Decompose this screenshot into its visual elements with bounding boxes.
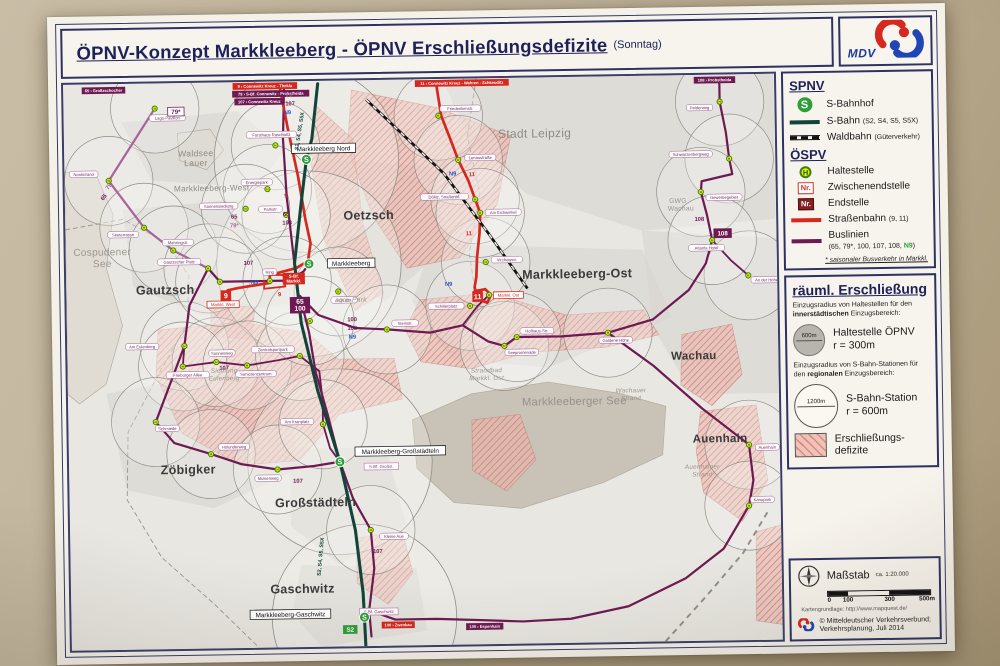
coverage-note-1: Einzugsradius von Haltestellen für den i… [793, 299, 929, 319]
legend-item-sbahnhof: S S-Bahnhof [789, 95, 925, 112]
legend-label: S-Bahn (S2, S4, S5, S5X) [827, 114, 919, 127]
map-sheet: ÖPNV-Konzept Markkleeberg - ÖPNV Erschli… [47, 3, 955, 665]
scale-label: Maßstab [827, 569, 870, 582]
area-label: Auenhainer [684, 463, 720, 471]
tram-line-icon [791, 218, 821, 222]
page-title: ÖPNV-Konzept Markkleeberg - ÖPNV Erschli… [76, 34, 607, 64]
coverage-label: S-Bahn-Stationr = 600m [846, 392, 918, 418]
legend-item-endstelle: Nr. Endstelle [791, 196, 927, 210]
route-box-label: 108 › Probstheida [698, 77, 732, 83]
stop-label: Mehringstr. [168, 240, 188, 245]
route-box-label: 65 › Großzschocher [85, 88, 123, 94]
nr-open-icon: Nr. [798, 182, 814, 194]
area-label: Cospudener [73, 247, 131, 259]
radius-600m-icon: 1200m [794, 384, 839, 429]
stop-label: Seepromenade [508, 350, 537, 355]
stop-label: Sonnensiedlung [204, 203, 234, 208]
sbahn-logo-icon: S [797, 97, 812, 112]
area-label: Gautzsch [136, 283, 195, 298]
line-number-label: 107 [285, 101, 295, 107]
content-row: HHHHHHHHHHHHHHHHHHHHHHHHHHHHHHHHHHHHHHHH… [61, 69, 942, 653]
map-panel: HHHHHHHHHHHHHHHHHHHHHHHHHHHHHHHHHHHHHHHH… [61, 72, 785, 653]
stop-label: Gautzscher Platz [164, 259, 195, 265]
station-label: Markkleeberg-Großstädteln [362, 448, 440, 456]
line-number-label: N9 [251, 280, 258, 286]
legend-label: Haltestelle [827, 165, 874, 177]
mdv-mini-logo-icon [797, 618, 814, 631]
area-label: Auenhain [693, 433, 748, 446]
stop-label: Friederikenstr. [447, 106, 473, 111]
stop-label: Dölitz, Straßenbf. [428, 194, 460, 200]
legend-raeuml-header: räuml. Erschließung [792, 280, 928, 298]
haltestelle-icon: H [799, 166, 811, 178]
area-label: Oetzsch [343, 208, 394, 223]
nr-filled-icon: Nr. [798, 198, 814, 210]
area-label: Gaschwitz [270, 581, 335, 596]
stop-label: Lenaustraße [469, 155, 493, 160]
area-label: Siedlung [211, 367, 238, 374]
coverage-label: Haltestelle ÖPNVr = 300m [833, 326, 915, 352]
line-number-label: 108 [282, 220, 292, 226]
legend-label: Zwischenendstelle [828, 181, 910, 194]
waldbahn-line-icon [790, 135, 820, 140]
legend-lines-box: SPNV S S-Bahnhof S-Bahn (S2, S4, S5, S5X… [781, 69, 936, 270]
line-number-label: N9 [449, 171, 456, 177]
coverage-item-deficit: Erschließungs-defizite [795, 431, 931, 458]
route-box-label: 100 › Espenhain [469, 624, 500, 630]
line-number-label: 100 [347, 317, 357, 323]
legend-spnv-header: SPNV [789, 76, 925, 93]
area-label: Eulenberg [209, 375, 240, 383]
route-box-label: Markkl. Ost [498, 292, 520, 297]
stop-label: Freiburger Allee [173, 372, 203, 377]
stop-label: Seniorenzentrum [240, 371, 272, 377]
line-number-label: 65 [231, 215, 238, 221]
area-label: Markkleeberg-Ost [522, 266, 633, 282]
bus-line-icon [792, 239, 822, 243]
route-box-label: 100 › Zwenkau [384, 622, 412, 627]
map-source-note: Kartengrundlage: http://www.mapquest.de/ [801, 605, 933, 613]
area-label: GWG [669, 198, 687, 205]
stop-label: Kleine Aue [384, 534, 404, 539]
stop-label: Auenhain [759, 445, 777, 450]
route-box-label: 9 [224, 291, 228, 300]
legend-label: S-Bahnhof [826, 98, 873, 110]
legend-column: SPNV S S-Bahnhof S-Bahn (S2, S4, S5, S5X… [781, 69, 942, 641]
legend-label: Buslinien (65, 79*, 100, 107, 108, N9) [828, 228, 915, 252]
area-label: Strandbad [471, 367, 503, 375]
route-box-label: 11 [474, 292, 482, 301]
legend-item-strassenbahn: Straßenbahn (9, 11) [791, 212, 927, 226]
line-number-label: 9 [278, 292, 281, 298]
line-number-label: 11 [469, 172, 476, 178]
stop-label: An der Höhe [755, 277, 779, 282]
photo-of-printed-map: { "title": {"main": "ÖPNV-Konzept Markkl… [0, 0, 1000, 666]
line-number-label: N9 [445, 282, 452, 288]
line-number-label: 79* [286, 93, 295, 99]
stop-label: Ring [265, 270, 274, 275]
stop-label: Schwarzenbergweg [673, 151, 710, 157]
mdv-logo-box: MDV [838, 15, 933, 66]
line-number-label: 108 [347, 326, 357, 332]
line-number-label: 11 [466, 231, 473, 237]
area-label: Strand [692, 471, 712, 478]
copyright-text: © Mitteldeutscher Verkehrsverbund; Verke… [819, 616, 931, 635]
compass-icon [797, 564, 821, 588]
legend-label: Waldbahn (Güterverkehr) [827, 130, 920, 143]
stop-label: Steinstr. [398, 321, 413, 326]
scale-bar: 0 100 300 500m [827, 589, 931, 597]
deficit-swatch-icon [795, 433, 827, 457]
scale-ratio: ca. 1:20.000 [876, 571, 909, 578]
coverage-label: Erschließungs-defizite [835, 432, 905, 458]
stop-label: Nordstrand [73, 172, 94, 177]
stop-label: Am Eichwinkel [490, 210, 517, 215]
route-box-label: S2 [346, 627, 354, 634]
sbahn-station-s-glyph: S [306, 259, 311, 268]
outer-frame: ÖPNV-Konzept Markkleeberg - ÖPNV Erschli… [55, 10, 947, 658]
stop-label: Virchowstr. [497, 257, 517, 262]
sbahn-station-s-glyph: S [362, 613, 367, 622]
stop-label: Am Eulenberg [129, 344, 156, 349]
area-label: Stadt Leipzig [498, 126, 571, 141]
area-label: Großstädteln [275, 495, 356, 510]
legend-label: Straßenbahn (9, 11) [828, 213, 908, 226]
area-label: Strand [621, 395, 641, 402]
coverage-note-2: Einzugsradius von S-Bahn-Stationen für d… [793, 359, 929, 379]
sbahn-station-s-glyph: S [304, 155, 309, 164]
legend-item-waldbahn: Waldbahn (Güterverkehr) [790, 130, 926, 144]
stop-label: Sonnenweg [211, 351, 233, 356]
line-number-label: N9 [349, 335, 356, 341]
coverage-item-stop: 600m Haltestelle ÖPNVr = 300m [793, 322, 929, 356]
scale-row: Maßstab ca. 1:20.000 [797, 562, 933, 588]
transit-map: HHHHHHHHHHHHHHHHHHHHHHHHHHHHHHHHHHHHHHHH… [63, 74, 783, 651]
line-number-label: N9 [284, 110, 291, 116]
stop-label: Schmiede [158, 426, 177, 431]
line-number-label: 108 [695, 217, 705, 223]
area-label: Markkleeberger See [522, 395, 627, 409]
area-label: Wachau [671, 350, 717, 363]
stop-label: Schillerplatz [435, 303, 457, 308]
line-number-label: 65 [283, 212, 290, 218]
stop-label: Kanupark [754, 497, 773, 502]
line-number-label: 107 [293, 479, 303, 485]
stop-label: Atlanta Hotel [695, 245, 719, 250]
area-label: Wachau [668, 205, 694, 212]
area-label: Zöbigker [161, 462, 216, 477]
route-box-label: 9 › Connewitz Kreuz - Thekla [238, 83, 293, 89]
mdv-logo-icon [873, 19, 926, 58]
legend-item-sbahn-line: S-Bahn (S2, S4, S5, S5X) [790, 114, 926, 128]
stop-label: Seeterrasse [112, 232, 135, 237]
route-box-label: 79* [171, 109, 181, 116]
legend-footnote: * saisonaler Busverkehr in Markkl. [792, 255, 928, 264]
sbahn-station-s-glyph: S [337, 457, 342, 466]
sbahn-line-icon [790, 120, 820, 124]
area-label: Wachauer [616, 387, 647, 395]
stop-label: Gewerbegebiet [710, 195, 739, 200]
stop-label: Parkstr. [264, 207, 278, 212]
legend-label: Endstelle [828, 197, 869, 209]
mdv-logo-text: MDV [848, 46, 876, 60]
station-label: Markkleeberg-Gaschwitz [256, 611, 326, 619]
stop-label: Pelderweg [690, 105, 710, 110]
line-number-label: 107 [373, 549, 383, 555]
area-label: Markkleeberg-West [174, 183, 250, 193]
area-label: Markkl. Ost [469, 375, 504, 383]
page-title-suffix: (Sonntag) [613, 38, 661, 51]
stop-label: Forsthaus Raschwitz [252, 132, 290, 138]
station-label: Markkleeberg Nord [296, 145, 350, 153]
route-box-label: 100 [294, 306, 306, 313]
line-number-label: 79* [230, 223, 239, 229]
route-box-label: Markkl. West [211, 302, 236, 307]
route-box-label: 108 [717, 230, 728, 237]
legend-oespv-header: ÖSPV [790, 145, 926, 162]
coverage-item-station: 1200m S-Bahn-Stationr = 600m [794, 382, 931, 428]
route-box-label: Markkl. [286, 278, 301, 283]
copyright-row: © Mitteldeutscher Verkehrsverbund; Verke… [797, 616, 933, 636]
area-label: See [93, 259, 112, 270]
title-bar: ÖPNV-Konzept Markkleeberg - ÖPNV Erschli… [60, 15, 933, 79]
stop-label: Goldene Höhe [602, 338, 629, 343]
route-box-label: 107 › Connewitz Kreuz [238, 99, 281, 105]
radius-300m-icon: 600m [793, 324, 825, 356]
legend-item-zwischenendstelle: Nr. Zwischenendstelle [791, 180, 927, 194]
legend-item-haltestelle: H Haltestelle [790, 164, 926, 178]
stop-label: Hofhaus-Str. [525, 328, 548, 333]
stop-label: Holunderweg [222, 444, 247, 449]
stop-label: Am Kranplatz [285, 419, 310, 424]
station-label: Markkleeberg [332, 260, 371, 268]
legend-coverage-box: räuml. Erschließung Einzugsradius von Ha… [784, 273, 939, 470]
stop-label: Mulsenweg [258, 476, 280, 481]
legend-item-buslinien: Buslinien (65, 79*, 100, 107, 108, N9) [791, 228, 927, 253]
line-number-label: 9 [284, 193, 287, 199]
line-number-label: 107 [244, 261, 254, 267]
route-box-label: S-Bf. Großst. [369, 464, 394, 469]
title-box: ÖPNV-Konzept Markkleeberg - ÖPNV Erschli… [60, 17, 834, 79]
stop-label: Zentralsportpark [258, 347, 289, 353]
legend-scale-box: Maßstab ca. 1:20.000 0 100 300 500m Kart… [789, 556, 942, 642]
area-label: agra-Park [335, 297, 368, 305]
area-label: Lauer [184, 158, 208, 168]
